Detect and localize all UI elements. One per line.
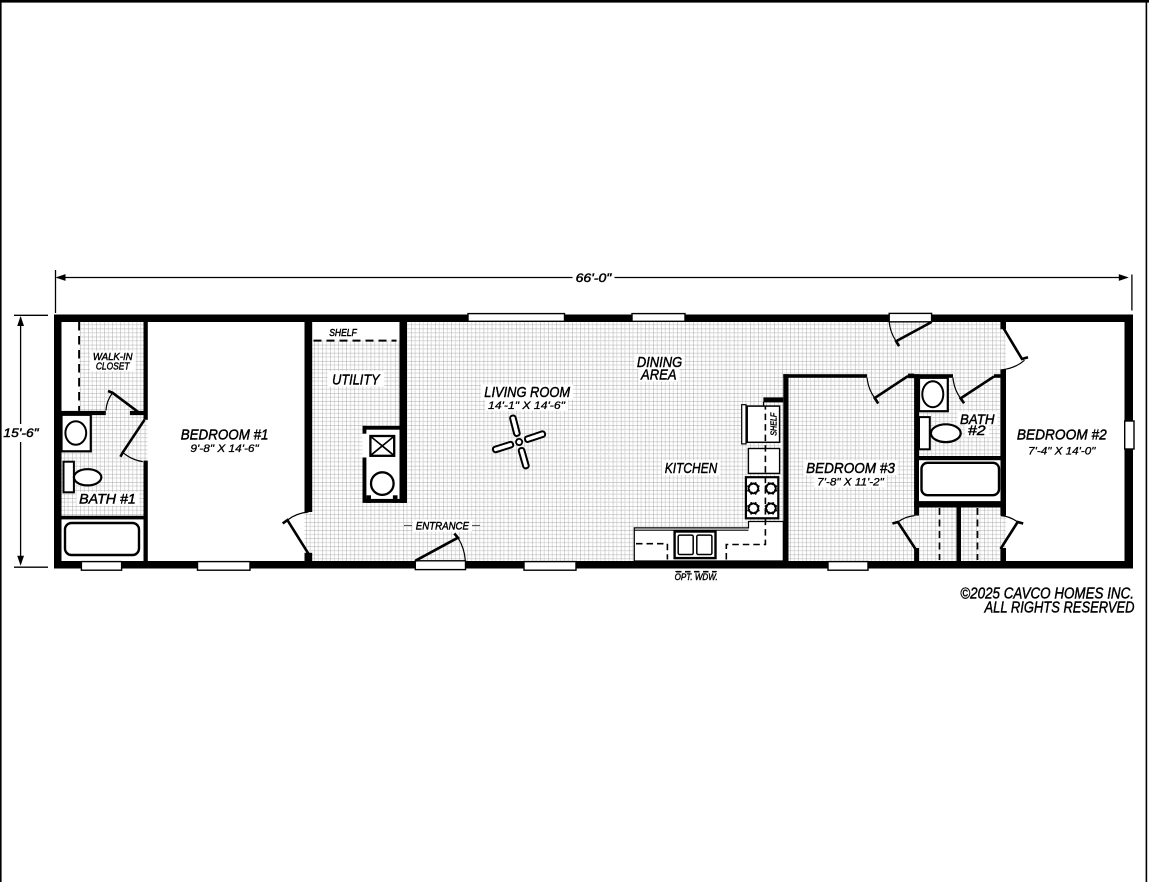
svg-text:14'-1" X 14'-6": 14'-1" X 14'-6" xyxy=(488,400,566,412)
svg-text:LIVING ROOM: LIVING ROOM xyxy=(484,385,571,401)
svg-text:9'-8" X 14'-6": 9'-8" X 14'-6" xyxy=(190,443,259,455)
svg-text:BEDROOM #2: BEDROOM #2 xyxy=(1017,427,1107,443)
svg-text:BEDROOM #1: BEDROOM #1 xyxy=(181,428,269,444)
svg-text:SHELF: SHELF xyxy=(329,328,357,339)
svg-text:OPT. WDW.: OPT. WDW. xyxy=(675,572,718,583)
svg-text:AREA: AREA xyxy=(640,367,676,383)
svg-text:15'-6": 15'-6" xyxy=(3,428,39,440)
svg-text:BEDROOM #3: BEDROOM #3 xyxy=(806,461,895,477)
svg-text:ALL RIGHTS RESERVED: ALL RIGHTS RESERVED xyxy=(984,599,1135,616)
svg-text:BATH #1: BATH #1 xyxy=(79,492,136,507)
svg-text:CLOSET: CLOSET xyxy=(96,360,131,372)
svg-text:ENTRANCE: ENTRANCE xyxy=(416,520,470,532)
svg-text:SHELF: SHELF xyxy=(770,412,779,436)
svg-text:66'-0": 66'-0" xyxy=(576,273,613,285)
svg-text:#2: #2 xyxy=(968,423,986,438)
svg-text:7'-8" X 11'-2": 7'-8" X 11'-2" xyxy=(817,476,885,488)
svg-text:UTILITY: UTILITY xyxy=(332,372,380,389)
svg-text:7'-4" X 14'-0": 7'-4" X 14'-0" xyxy=(1028,445,1096,457)
svg-text:KITCHEN: KITCHEN xyxy=(665,461,718,477)
